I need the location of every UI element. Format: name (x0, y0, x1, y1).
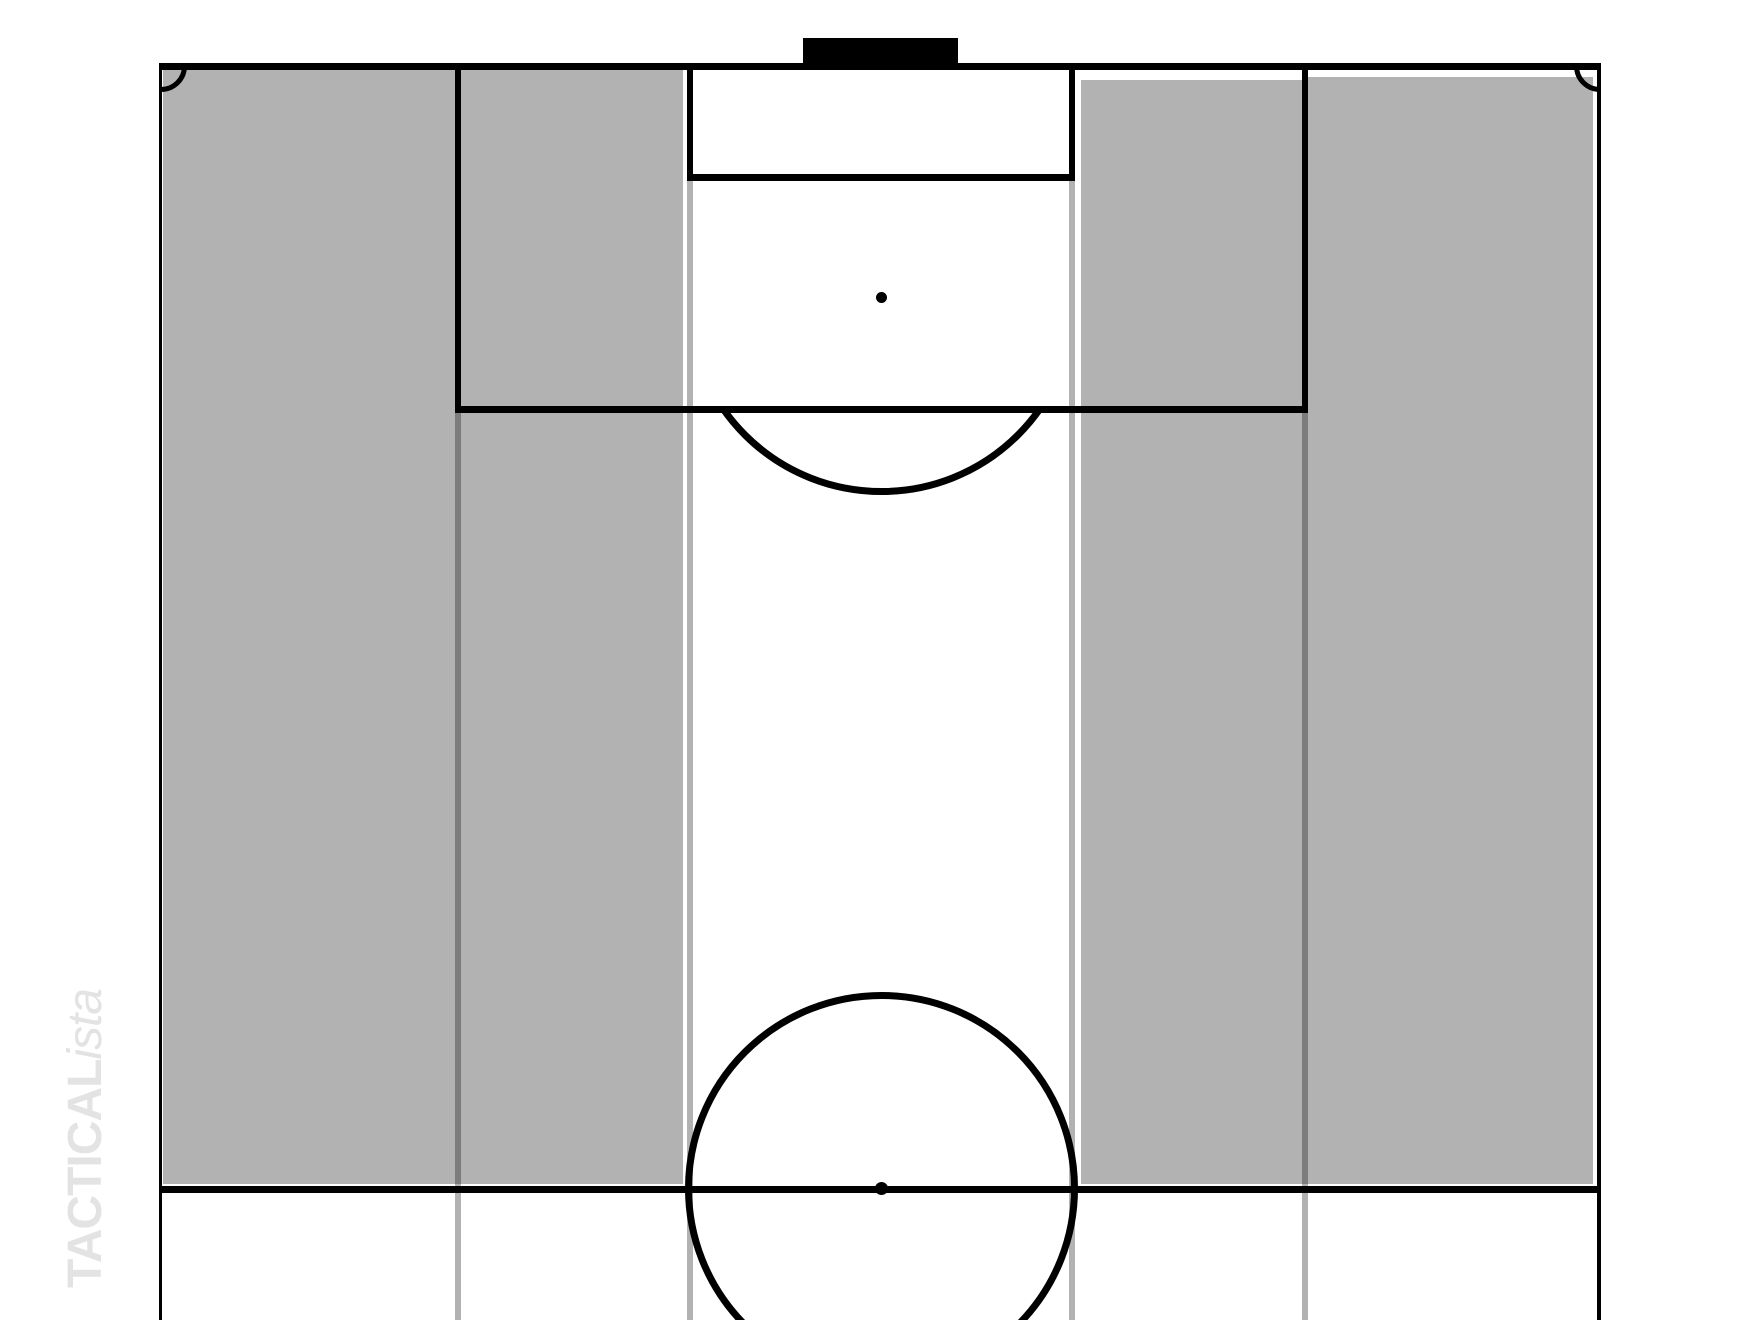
six-yard-box (687, 63, 1075, 181)
center-circle (685, 992, 1078, 1320)
penalty-spot (876, 292, 887, 303)
goal (803, 38, 958, 70)
shaded-zone-wide-left[interactable] (163, 68, 457, 1184)
watermark-italic-text: ista (59, 989, 112, 1060)
channel-line-penalty-left (455, 407, 461, 1320)
corner-arc-top-left (135, 40, 187, 92)
watermark: TACTICALista (58, 948, 113, 1288)
touchline-right (1597, 63, 1601, 1320)
watermark-bold-text: TACTICAL (59, 1060, 112, 1288)
center-spot (875, 1182, 888, 1195)
tactics-board: TACTICALista (0, 0, 1760, 1320)
channel-line-penalty-right (1302, 407, 1308, 1320)
shaded-zone-wide-right[interactable] (1305, 77, 1593, 1184)
touchline-left (159, 63, 162, 1320)
